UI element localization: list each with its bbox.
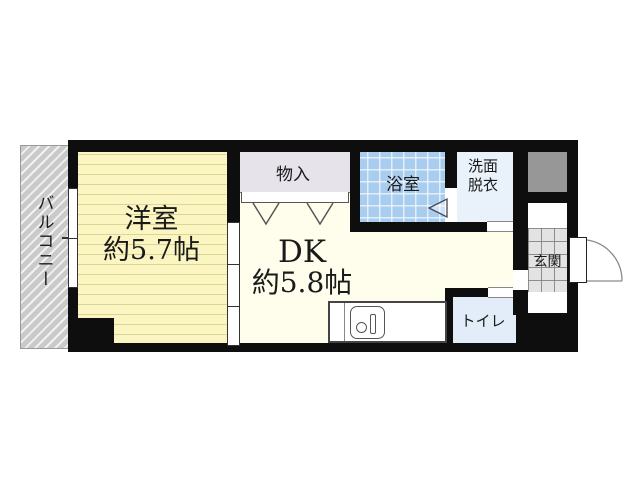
toilet-label: トイレ bbox=[451, 310, 515, 331]
bath-label: 浴室 bbox=[357, 170, 449, 195]
washroom-label: 洗面 脱衣 bbox=[451, 157, 515, 195]
wall-segment bbox=[513, 290, 528, 315]
closet-label: 物入 bbox=[233, 160, 353, 185]
western-room-label: 洋室 約5.7帖 bbox=[73, 204, 230, 266]
floor-plan: バルコニー 洋室 約5.7帖 物入 浴室 洗面 脱衣 DK 約5.8帖 玄関 ト… bbox=[0, 0, 640, 480]
washroom-door-opening bbox=[487, 221, 513, 232]
wall-segment bbox=[516, 313, 578, 352]
entrance-door-leaf bbox=[569, 237, 587, 283]
wall-segment bbox=[69, 343, 578, 352]
wall-segment bbox=[69, 140, 578, 152]
wall-segment bbox=[449, 288, 490, 297]
balcony-label: バルコニー bbox=[26, 162, 62, 320]
kitchen-sink-icon bbox=[350, 306, 385, 339]
sink-drain-icon bbox=[356, 322, 367, 333]
sink-faucet-icon bbox=[370, 314, 376, 334]
shaft-box bbox=[526, 145, 568, 193]
kitchen-counter bbox=[328, 301, 447, 343]
wall-segment bbox=[350, 222, 488, 232]
wall-segment bbox=[513, 140, 528, 270]
dk-label: DK 約5.8帖 bbox=[227, 236, 377, 298]
hall-door-opening bbox=[513, 270, 528, 290]
entrance-door-swing-icon bbox=[587, 240, 622, 281]
closet-door-strip bbox=[241, 192, 349, 203]
entrance-label: 玄関 bbox=[527, 251, 568, 271]
window-tick bbox=[62, 237, 68, 239]
wall-segment bbox=[528, 192, 568, 203]
toilet-door-opening bbox=[488, 287, 513, 298]
